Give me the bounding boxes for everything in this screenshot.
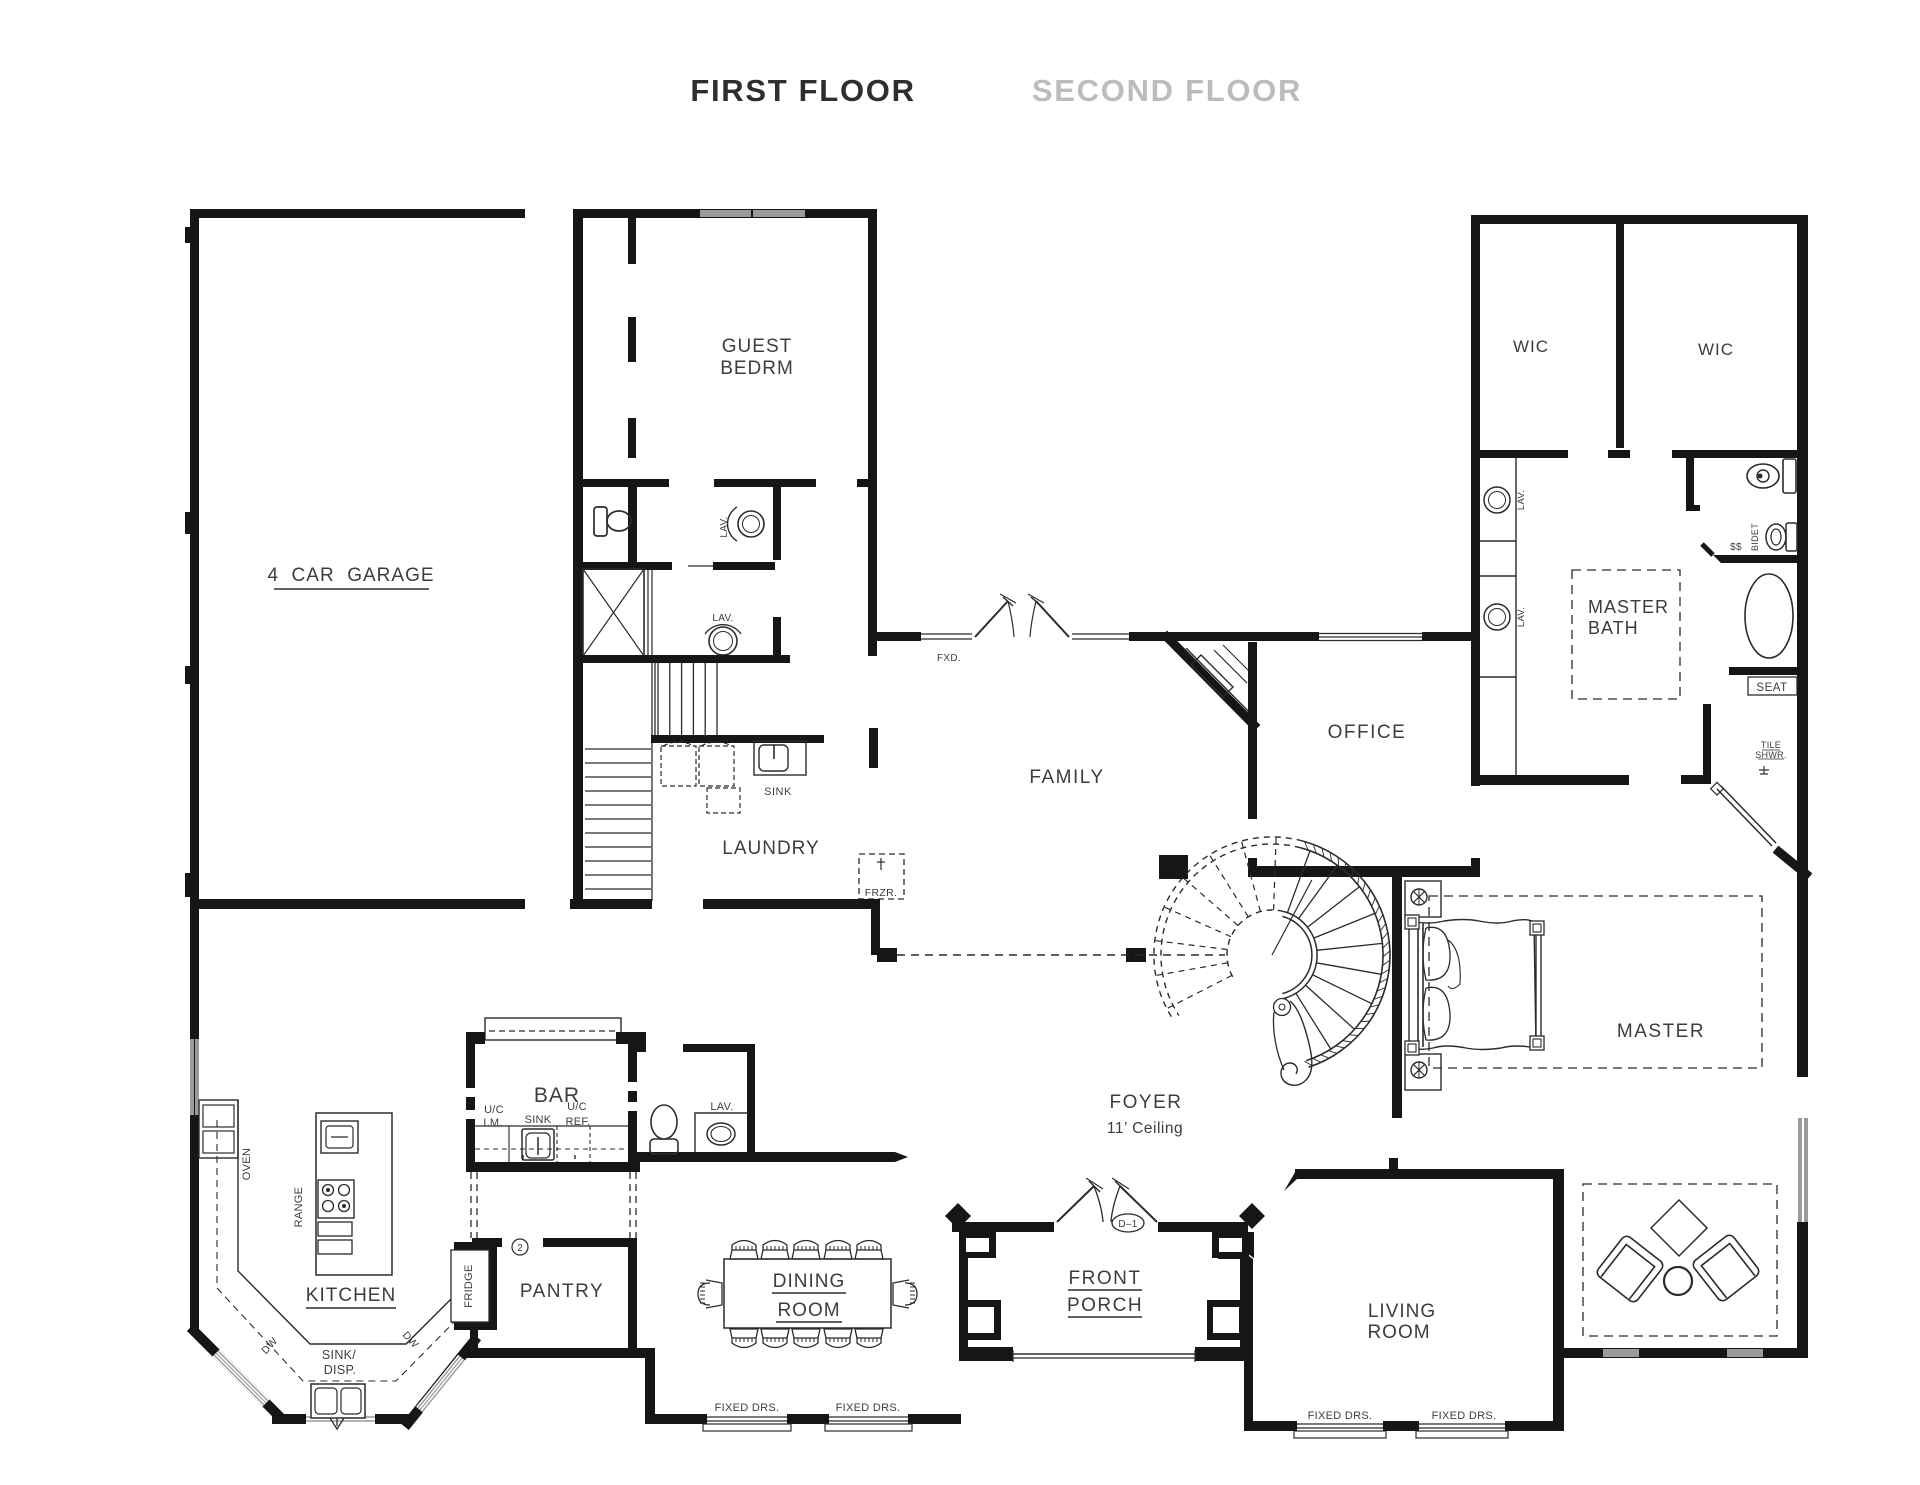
svg-text:RANGE: RANGE <box>293 1187 305 1228</box>
svg-text:FRIDGE: FRIDGE <box>463 1264 475 1307</box>
svg-text:REF.: REF. <box>565 1116 590 1128</box>
svg-text:PORCH: PORCH <box>1067 1295 1143 1316</box>
svg-text:LAV.: LAV. <box>1516 607 1527 627</box>
svg-text:U/C: U/C <box>484 1104 504 1116</box>
svg-text:ROOM: ROOM <box>1367 1322 1430 1343</box>
svg-text:4 CAR GARAGE: 4 CAR GARAGE <box>267 565 434 586</box>
svg-text:SINK: SINK <box>764 786 792 798</box>
svg-text:FAMILY: FAMILY <box>1029 767 1104 788</box>
svg-text:WIC: WIC <box>1513 337 1549 356</box>
svg-text:OFFICE: OFFICE <box>1328 722 1407 743</box>
svg-text:LIVING: LIVING <box>1368 1301 1436 1322</box>
svg-text:FIXED DRS.: FIXED DRS. <box>1308 1410 1373 1422</box>
svg-text:LAV.: LAV. <box>1516 490 1527 510</box>
svg-text:SEAT: SEAT <box>1756 682 1787 694</box>
svg-text:BEDRM: BEDRM <box>720 358 794 379</box>
svg-text:MASTER: MASTER <box>1617 1021 1705 1042</box>
svg-text:11’ Ceiling: 11’ Ceiling <box>1107 1120 1183 1137</box>
svg-text:LAV.: LAV. <box>712 613 733 624</box>
svg-text:FIXED DRS.: FIXED DRS. <box>1432 1410 1497 1422</box>
svg-text:D–1: D–1 <box>1118 1219 1137 1230</box>
svg-text:SINK: SINK <box>525 1114 552 1126</box>
svg-text:LAV.: LAV. <box>719 516 730 537</box>
svg-text:FIXED DRS.: FIXED DRS. <box>715 1402 780 1414</box>
svg-text:KITCHEN: KITCHEN <box>306 1285 396 1306</box>
svg-text:LAV.: LAV. <box>710 1101 733 1113</box>
svg-text:ROOM: ROOM <box>777 1300 840 1321</box>
svg-text:U/C: U/C <box>567 1101 587 1113</box>
svg-text:FIXED DRS.: FIXED DRS. <box>836 1402 901 1414</box>
svg-text:OVEN: OVEN <box>241 1148 253 1180</box>
svg-text:2: 2 <box>517 1243 523 1254</box>
svg-text:BIDET: BIDET <box>1750 523 1760 551</box>
svg-text:LAUNDRY: LAUNDRY <box>722 838 819 859</box>
svg-text:PANTRY: PANTRY <box>520 1281 604 1302</box>
svg-text:FXD.: FXD. <box>937 653 961 664</box>
svg-text:FOYER: FOYER <box>1110 1092 1183 1113</box>
svg-text:MASTER: MASTER <box>1588 597 1669 617</box>
svg-text:FRZR.: FRZR. <box>865 887 897 899</box>
svg-text:FIRST FLOOR: FIRST FLOOR <box>690 73 915 108</box>
svg-text:GUEST: GUEST <box>722 336 792 357</box>
svg-text:FRONT: FRONT <box>1069 1268 1142 1289</box>
svg-text:I.M.: I.M. <box>483 1117 503 1129</box>
svg-text:$$: $$ <box>1730 542 1742 553</box>
svg-text:WIC: WIC <box>1698 340 1734 359</box>
svg-text:DISP.: DISP. <box>324 1363 357 1377</box>
svg-text:BATH: BATH <box>1588 618 1639 638</box>
svg-text:TILE: TILE <box>1761 740 1781 750</box>
svg-text:SECOND FLOOR: SECOND FLOOR <box>1032 73 1302 108</box>
svg-text:DINING: DINING <box>773 1271 846 1292</box>
svg-text:SINK/: SINK/ <box>322 1348 356 1362</box>
svg-text:SHWR.: SHWR. <box>1755 750 1787 760</box>
